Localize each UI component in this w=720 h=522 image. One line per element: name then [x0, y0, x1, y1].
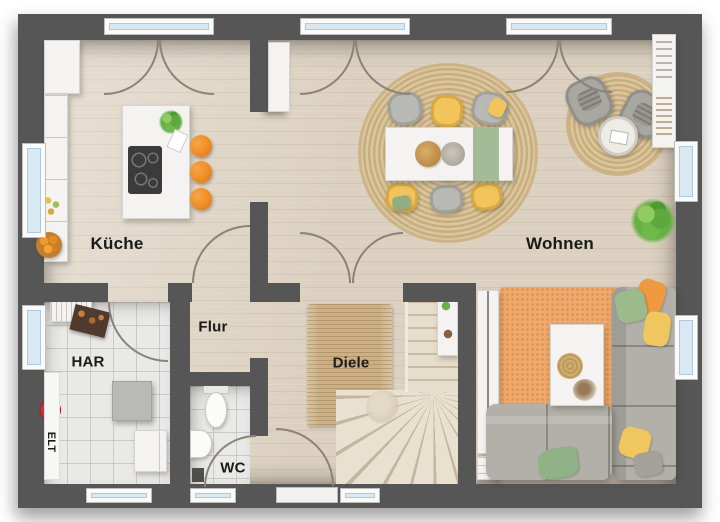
room-label-kueche: Küche [91, 234, 144, 254]
room-label-wc: WC [220, 460, 245, 477]
window-glass [109, 23, 209, 30]
coffee-table [550, 324, 604, 406]
tall-cabinet [268, 42, 290, 112]
floor-plan: Küche Wohnen Flur HAR Diele WC ELT [0, 0, 720, 522]
chair-cloth [391, 195, 411, 212]
chair-cushion [486, 96, 508, 119]
window [86, 488, 152, 503]
wall [458, 283, 476, 484]
window [104, 18, 214, 35]
table-decor [573, 379, 597, 401]
centerpiece-flowers [441, 142, 465, 166]
window [190, 488, 236, 503]
window-glass [679, 320, 693, 375]
window-glass [27, 310, 41, 365]
window [22, 143, 46, 238]
books [656, 97, 672, 139]
utility-unit [112, 381, 152, 421]
window [506, 18, 612, 35]
bar-stool [190, 188, 212, 210]
table-runner [473, 127, 499, 181]
entrance-sidelight [340, 488, 380, 503]
window-glass [91, 493, 147, 498]
wall [250, 40, 268, 112]
wall [250, 358, 268, 436]
electrical-panel [44, 372, 60, 480]
dried-plant [366, 390, 400, 424]
window-glass [27, 148, 41, 233]
wc-bin [192, 468, 204, 482]
sink [190, 430, 212, 458]
wall [403, 283, 458, 302]
centerpiece-bowl [415, 141, 441, 167]
wall [250, 283, 300, 302]
kitchen-wall-cabinet [44, 40, 80, 94]
bar-stool [190, 135, 212, 157]
bookshelf [652, 34, 676, 148]
room-label-diele: Diele [333, 355, 370, 372]
window [300, 18, 410, 35]
cooktop [128, 146, 162, 194]
placemat [557, 353, 583, 379]
room-label-wohnen: Wohnen [526, 234, 594, 254]
window [22, 305, 46, 370]
wall [170, 293, 190, 484]
washing-machine [134, 430, 167, 472]
wall [44, 283, 108, 302]
window-glass [679, 146, 693, 197]
window-glass [511, 23, 607, 30]
toilet [205, 392, 227, 428]
books [656, 41, 672, 79]
room-label-flur: Flur [198, 319, 227, 336]
dining-chair [385, 181, 420, 213]
book [609, 130, 629, 146]
dining-chair [430, 94, 464, 128]
window-glass [305, 23, 405, 30]
living-plant [630, 198, 676, 244]
side-table [598, 116, 638, 156]
stair-shelf [437, 293, 458, 356]
entrance-door [276, 487, 338, 503]
bar-stool [190, 161, 212, 183]
room-label-elt: ELT [45, 432, 57, 453]
window-glass [345, 493, 375, 498]
window [674, 315, 698, 380]
room-label-har: HAR [71, 354, 104, 371]
window [674, 141, 698, 202]
window-glass [195, 493, 231, 498]
